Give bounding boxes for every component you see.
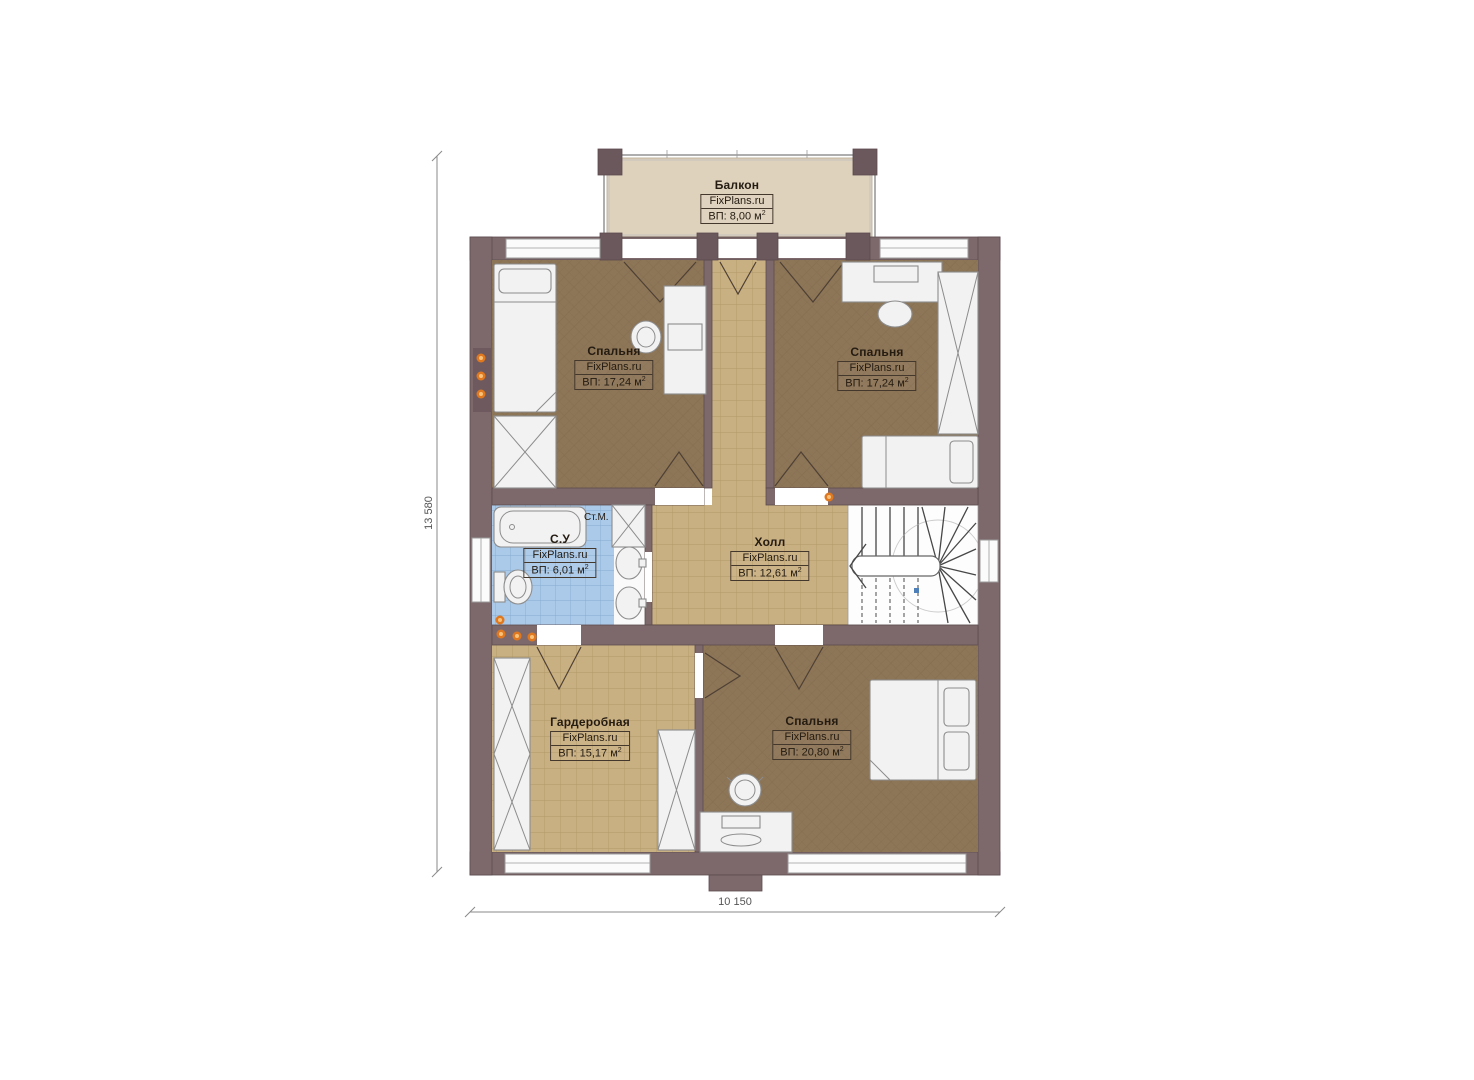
room-brand: FixPlans.ru (575, 361, 652, 375)
room-label-bedroom-top-right: Спальня FixPlans.ru ВП: 17,24 м2 (837, 345, 916, 392)
window (980, 540, 998, 582)
room-area: ВП: 8,00 м2 (701, 209, 772, 223)
room-area: ВП: 6,01 м2 (524, 563, 595, 577)
room-name: Балкон (700, 178, 773, 192)
washing-machine (612, 505, 645, 547)
room-label-bedroom-top-left: Спальня FixPlans.ru ВП: 17,24 м2 (574, 344, 653, 391)
room-brand: FixPlans.ru (524, 549, 595, 563)
room-brand: FixPlans.ru (551, 732, 628, 746)
room-name: С.У (523, 532, 596, 546)
room-name: Спальня (837, 345, 916, 359)
window (506, 239, 600, 258)
chimney-bump (709, 875, 762, 891)
wardrobe-cabinet (494, 658, 530, 850)
dressing-table (700, 812, 792, 852)
room-area: ВП: 15,17 м2 (551, 746, 628, 760)
window (472, 538, 490, 602)
balcony-post-right (853, 149, 877, 175)
room-brand: FixPlans.ru (838, 362, 915, 376)
desk-chair (878, 301, 912, 327)
room-name: Гардеробная (550, 715, 630, 729)
stair-marker (914, 588, 919, 593)
floor-plan-canvas: Балкон FixPlans.ru ВП: 8,00 м2 Спальня F… (0, 0, 1474, 1080)
bed (494, 264, 556, 412)
room-brand: FixPlans.ru (701, 195, 772, 209)
dimension-line-horizontal (465, 907, 1005, 917)
room-brand: FixPlans.ru (773, 731, 850, 745)
room-area: ВП: 12,61 м2 (731, 566, 808, 580)
window (505, 854, 650, 873)
window (880, 239, 968, 258)
dimension-label-horizontal: 10 150 (718, 896, 752, 908)
room-name: Спальня (574, 344, 653, 358)
room-label-hall: Холл FixPlans.ru ВП: 12,61 м2 (730, 535, 809, 582)
room-label-bedroom-bottom: Спальня FixPlans.ru ВП: 20,80 м2 (772, 714, 851, 761)
room-brand: FixPlans.ru (731, 552, 808, 566)
washing-machine-label: Ст.М. (584, 512, 609, 523)
bed (862, 436, 978, 488)
balcony-post-left (598, 149, 622, 175)
wardrobe-cabinet (494, 416, 556, 488)
bed (870, 680, 976, 780)
room-name: Спальня (772, 714, 851, 728)
room-label-wardrobe: Гардеробная FixPlans.ru ВП: 15,17 м2 (550, 715, 630, 762)
wardrobe-cabinet (938, 272, 978, 434)
window (788, 854, 966, 873)
room-area: ВП: 20,80 м2 (773, 745, 850, 759)
room-name: Холл (730, 535, 809, 549)
stair-handrail (852, 556, 940, 576)
room-label-balcony: Балкон FixPlans.ru ВП: 8,00 м2 (700, 178, 773, 225)
wardrobe-cabinet (658, 730, 695, 850)
room-area: ВП: 17,24 м2 (838, 376, 915, 390)
room-area: ВП: 17,24 м2 (575, 375, 652, 389)
floor-corridor (712, 260, 766, 505)
room-label-bathroom: С.У FixPlans.ru ВП: 6,01 м2 (523, 532, 596, 579)
dimension-label-vertical: 13 580 (423, 496, 435, 530)
